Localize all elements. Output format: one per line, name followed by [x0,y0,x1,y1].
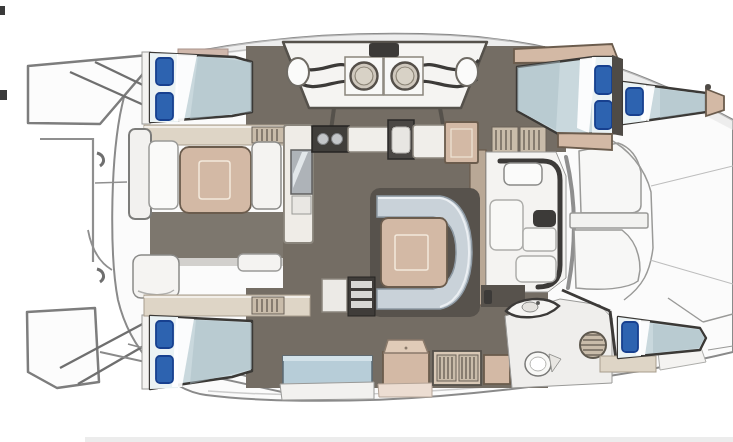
round-basin-inner [396,67,414,85]
counter [348,127,390,152]
counter [413,125,446,158]
louvered-door [459,355,478,381]
round-basin-inner [355,67,373,85]
lid-handle [405,347,408,350]
seat-cushion [287,58,309,86]
cleat-icon [97,269,104,282]
pillow [595,66,612,94]
cleat-icon [97,153,104,166]
transom-platform-lower [27,308,99,388]
pillow [622,322,638,352]
storage-box [484,355,510,384]
edge-artifact [0,6,5,15]
helm-seat [504,163,542,185]
cabin-divider [612,55,623,136]
seat-cushion [456,58,478,86]
deck-hatch [369,43,399,57]
stair-tread [351,301,372,308]
side-shelf [144,295,310,316]
pillow [156,58,173,85]
deck-bar [570,213,648,228]
console [383,352,429,385]
companionway-lower [322,277,375,316]
stair-tread [351,281,372,288]
louvered-vent [252,297,284,314]
helm-station [486,152,574,292]
pillow [595,101,612,129]
foot-locker [558,133,612,150]
louvered-door [437,355,456,381]
seat-piece [238,254,281,271]
console-base [378,383,432,397]
deck-panel [579,143,641,213]
round-louvered-hatch [580,332,606,358]
louvered-vent [252,127,284,143]
stair-tread [351,291,372,298]
salon-dinette [370,188,480,317]
corner-post [705,84,711,90]
pillow [156,93,173,120]
salon-table [381,218,447,287]
cabinet [322,279,347,312]
faucet [536,301,540,305]
edge-artifact [0,90,7,100]
settee-seat [252,142,281,209]
lounge-table [180,147,251,213]
settee-seat [149,141,178,209]
bench-top-highlight [283,356,372,361]
settee-back [129,129,151,219]
steering-wheel [533,210,556,227]
burner [318,134,329,145]
pillow [626,88,643,115]
bench-base [280,382,374,400]
step-detail [484,290,492,304]
locker [523,228,556,251]
bottom-edge-strip [85,437,733,442]
pillow [156,356,173,383]
pillow [156,321,173,348]
locker [516,256,556,282]
toilet-bowl [530,357,546,371]
bow-wedge [706,89,724,116]
bed-shading [190,56,252,119]
burner [332,134,343,145]
vanity-basin [522,302,538,312]
locker [490,200,523,250]
sink-basin [392,127,410,153]
deck-panel [574,230,640,289]
berth-shelf [600,356,656,372]
cabinet-small [292,196,311,214]
yacht-floor-plan [0,0,733,442]
